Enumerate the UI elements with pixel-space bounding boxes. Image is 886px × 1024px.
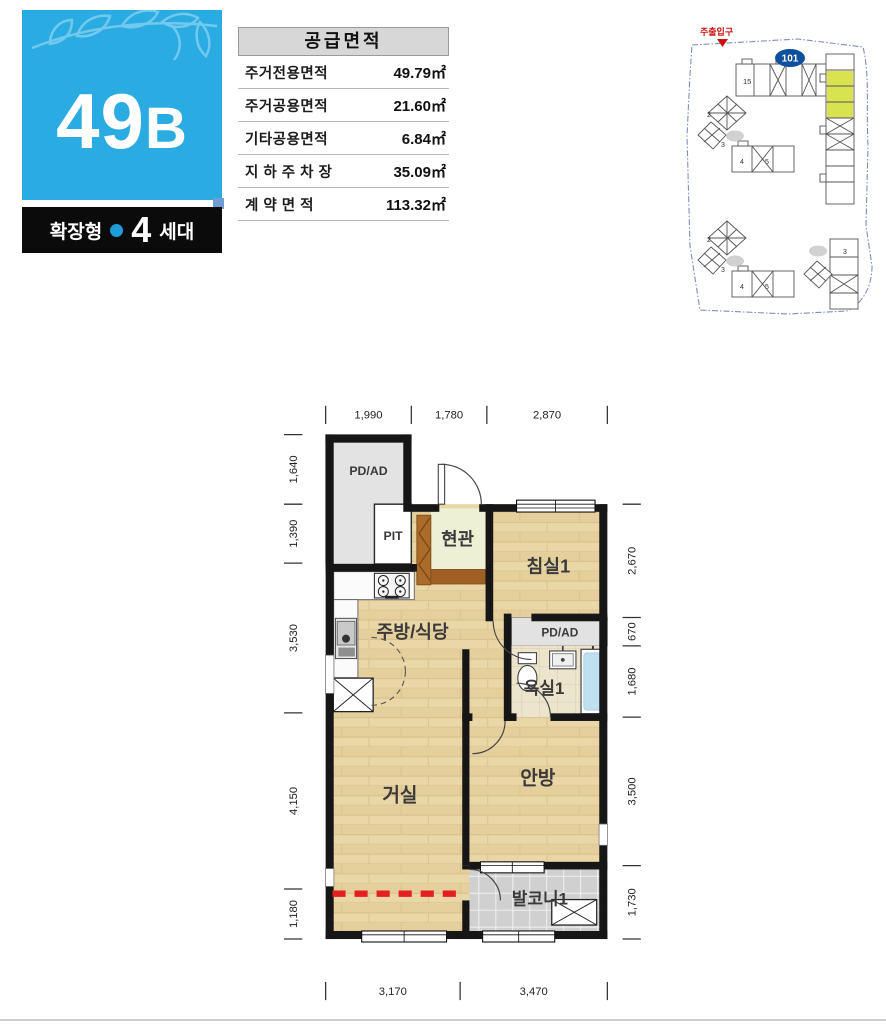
entry-door-swing xyxy=(441,464,481,504)
room-label-pdad-left: PD/AD xyxy=(349,464,387,478)
room-label-entry: 현관 xyxy=(441,529,474,549)
building-number: 5 xyxy=(765,284,769,291)
stove-icon xyxy=(374,573,409,598)
row-value: 113.32㎡ xyxy=(386,194,446,215)
dim-left-5: 1,180 xyxy=(288,900,300,928)
unit-code: 49B xyxy=(22,82,222,160)
dim-right-5: 1,730 xyxy=(626,888,638,916)
building-cluster-lower xyxy=(698,221,794,297)
dim-top-2: 1,780 xyxy=(435,409,463,421)
sink-icon xyxy=(335,618,356,658)
table-row: 주거전용면적 49.79㎡ xyxy=(238,56,449,89)
row-value: 35.09㎡ xyxy=(393,161,446,182)
dim-right-2: 670 xyxy=(626,622,638,641)
page-bottom-rule xyxy=(0,1019,886,1021)
unit-info-bar: 확장형 4 세대 xyxy=(22,207,222,253)
building-number: 4 xyxy=(740,284,744,291)
badge-gray xyxy=(726,256,744,267)
household-count: 4 xyxy=(131,212,151,248)
refrigerator-space xyxy=(333,678,373,712)
unit-type-badge: 49B xyxy=(22,10,222,200)
row-label: 주거공용면적 xyxy=(245,95,328,116)
dim-right-3: 1,680 xyxy=(626,667,638,695)
row-label: 지 하 주 차 장 xyxy=(245,161,332,182)
main-entrance-label: 주출입구 xyxy=(700,26,733,37)
building-number: 2 xyxy=(707,237,711,244)
room-label-master: 안방 xyxy=(520,768,556,790)
dim-bottom-2: 3,470 xyxy=(520,986,548,998)
room-label-balcony: 발코니1 xyxy=(512,890,568,909)
badge-gray xyxy=(726,131,744,142)
room-label-bedroom1: 침실1 xyxy=(527,555,571,576)
window-master-balcony xyxy=(480,862,544,873)
extension-type-label: 확장형 xyxy=(50,217,102,244)
site-plan: 주출입구 15 101 xyxy=(680,14,880,339)
dim-left-3: 3,530 xyxy=(288,624,300,652)
dim-right-1: 2,670 xyxy=(626,547,638,575)
row-value: 49.79㎡ xyxy=(393,62,446,83)
building-number: 5 xyxy=(765,159,769,166)
window-living-bottom xyxy=(362,931,447,942)
supply-area-table: 공급면적 주거전용면적 49.79㎡ 주거공용면적 21.60㎡ 기타공용면적 … xyxy=(238,27,449,221)
highlighted-units xyxy=(827,71,853,118)
dim-top-1: 1,990 xyxy=(354,409,382,421)
unit-code-number: 49 xyxy=(56,77,145,165)
building-number: 3 xyxy=(721,267,725,274)
table-row: 계 약 면 적 113.32㎡ xyxy=(238,188,449,221)
dim-bottom-1: 3,170 xyxy=(379,986,407,998)
room-label-pit: PIT xyxy=(384,529,404,543)
dim-left-1: 1,640 xyxy=(288,455,300,483)
badge-gray xyxy=(809,246,827,257)
window-bedroom1 xyxy=(517,500,595,512)
building-number: 3 xyxy=(721,142,725,149)
room-label-bath: 욕실1 xyxy=(524,679,565,698)
table-title: 공급면적 xyxy=(238,27,449,56)
table-row: 주거공용면적 21.60㎡ xyxy=(238,89,449,122)
dim-left-4: 4,150 xyxy=(288,787,300,815)
table-row: 기타공용면적 6.84㎡ xyxy=(238,122,449,155)
room-label-living: 거실 xyxy=(382,785,417,807)
dim-right-4: 3,500 xyxy=(626,777,638,805)
brochure-page: 49B 확장형 4 세대 공급면적 주거전용면적 49.79㎡ 주거공용면적 2… xyxy=(0,0,886,1024)
building-number: 15 xyxy=(743,77,751,86)
table-row: 지 하 주 차 장 35.09㎡ xyxy=(238,155,449,188)
room-label-kitchen: 주방/식당 xyxy=(377,621,449,642)
building-cluster-upper xyxy=(698,96,794,172)
window-balcony-bottom xyxy=(483,931,555,942)
row-label: 계 약 면 적 xyxy=(245,194,314,215)
row-label: 주거전용면적 xyxy=(245,62,328,83)
badge-101-text: 101 xyxy=(782,54,799,65)
dim-top-3: 2,870 xyxy=(533,409,561,421)
unit-code-letter: B xyxy=(145,96,188,161)
row-value: 21.60㎡ xyxy=(393,95,446,116)
room-label-pdad-right: PD/AD xyxy=(541,626,578,640)
household-suffix: 세대 xyxy=(159,217,194,244)
building-101 xyxy=(820,54,854,204)
building-number: 3 xyxy=(843,249,847,256)
floor-plan: PD/AD PIT 현관 침실1 주방/식당 PD/AD 욕실1 거실 안방 발… xyxy=(262,392,682,1016)
row-value: 6.84㎡ xyxy=(402,128,446,149)
row-label: 기타공용면적 xyxy=(245,128,328,149)
building-number: 2 xyxy=(707,112,711,119)
dim-left-2: 1,390 xyxy=(288,520,300,548)
bullet-dot-icon xyxy=(110,224,123,237)
entry-door-panel xyxy=(438,464,444,504)
building-number: 4 xyxy=(740,159,744,166)
